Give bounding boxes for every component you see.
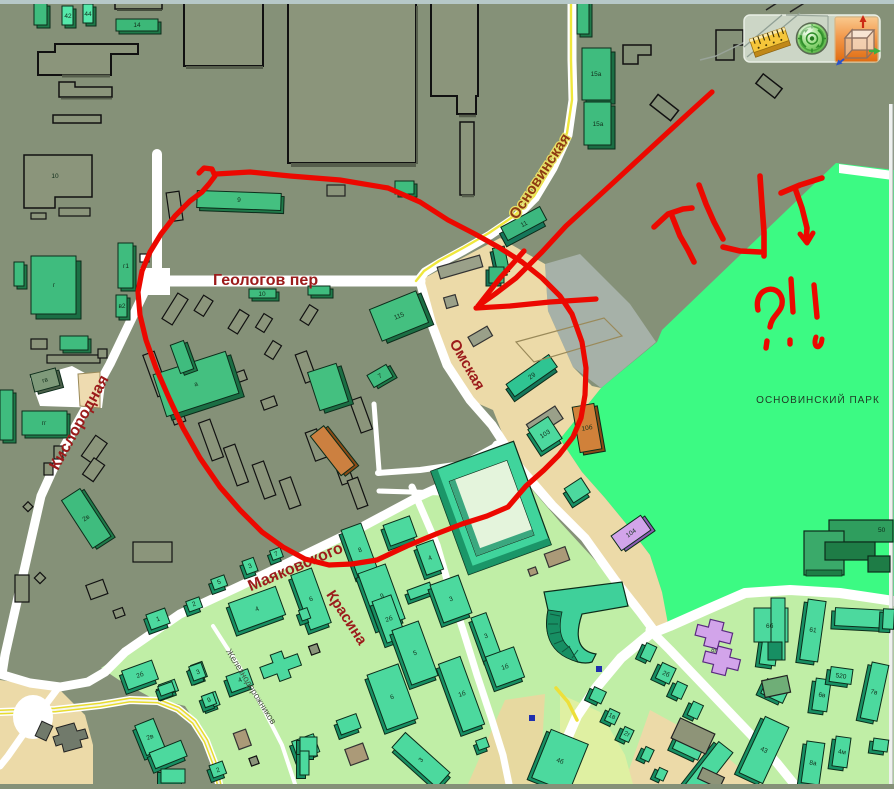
svg-text:гг: гг [42, 420, 47, 427]
svg-text:15а: 15а [593, 121, 604, 128]
svg-text:50: 50 [878, 527, 886, 534]
svg-text:в2: в2 [118, 303, 125, 310]
svg-text:г1: г1 [123, 263, 129, 270]
svg-text:8а: 8а [809, 760, 818, 768]
svg-text:14: 14 [133, 22, 141, 29]
svg-text:9: 9 [237, 197, 241, 204]
svg-text:6б: 6б [766, 622, 774, 630]
svg-text:61: 61 [809, 627, 818, 635]
svg-text:ОСНОВИНСКИЙ ПАРК: ОСНОВИНСКИЙ ПАРК [756, 393, 880, 406]
svg-text:44: 44 [84, 11, 92, 18]
svg-text:42: 42 [64, 13, 72, 20]
svg-text:4м: 4м [837, 748, 847, 756]
svg-text:10: 10 [51, 173, 59, 180]
svg-text:15а: 15а [591, 71, 602, 78]
svg-text:10: 10 [258, 291, 266, 298]
svg-text:Геологов пер: Геологов пер [213, 272, 318, 289]
